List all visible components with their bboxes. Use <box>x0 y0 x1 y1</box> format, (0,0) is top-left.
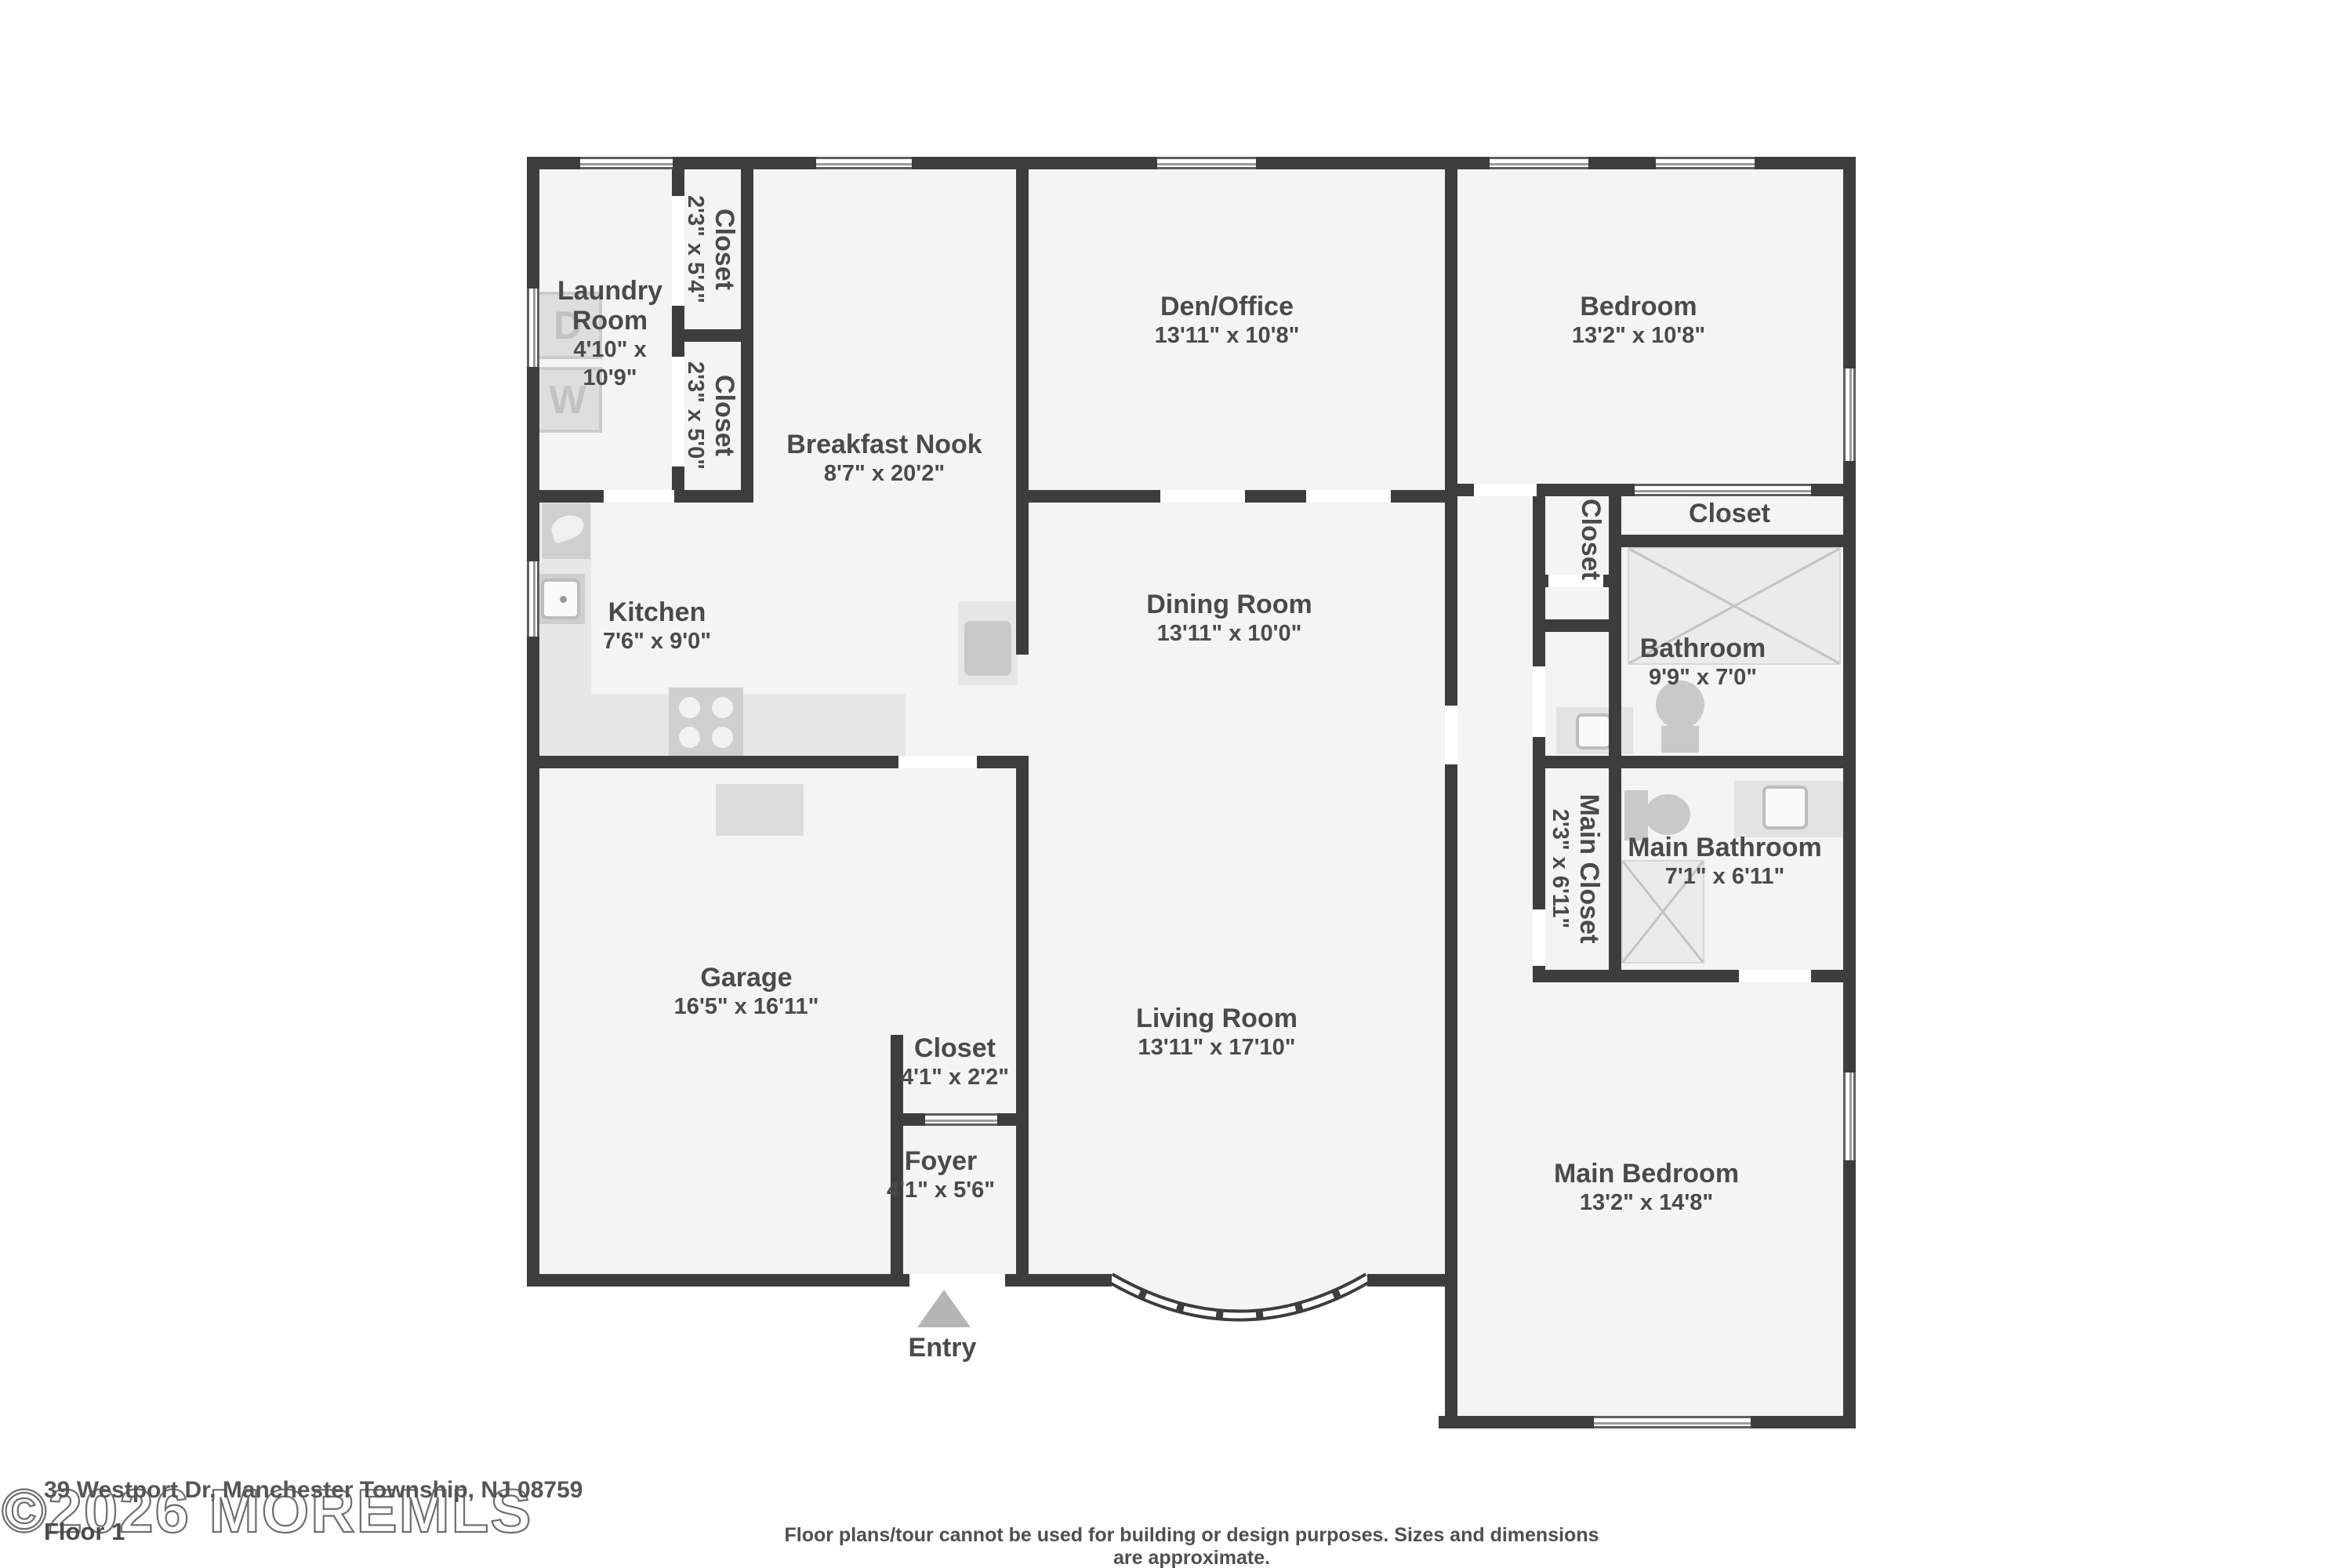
burner-icon <box>712 697 733 718</box>
burner-icon <box>712 727 733 748</box>
room-label-den-office: Den/Office 13'11" x 10'8" <box>1094 292 1360 350</box>
wall <box>1445 157 1457 1428</box>
room-label-garage: Garage 16'5" x 16'11" <box>613 963 880 1021</box>
room-label-bathroom: Bathroom 9'9" x 7'0" <box>1570 633 1836 691</box>
door-opening <box>1306 490 1391 503</box>
window <box>1157 157 1256 169</box>
disclaimer-text: Floor plans/tour cannot be used for buil… <box>784 1524 1599 1568</box>
room-label-bedroom: Bedroom 13'2" x 10'8" <box>1505 292 1772 350</box>
door-opening <box>1474 484 1537 496</box>
door-opening <box>1739 970 1811 982</box>
door-opening <box>1445 706 1457 764</box>
floorplan-canvas: D W Laundry Room 4'10" x 10'9" C <box>0 0 2352 1568</box>
room-label-living-room: Living Room 13'11" x 17'10" <box>1083 1004 1350 1062</box>
room-label-closet-hall: Closet <box>1546 406 1606 673</box>
closet-slider-door <box>1635 484 1811 496</box>
window <box>1594 1416 1751 1428</box>
wall <box>1843 157 1856 1428</box>
entry-door-opening <box>909 1274 1005 1287</box>
entry-arrow-icon <box>917 1290 971 1327</box>
door-opening <box>1160 490 1245 503</box>
toilet-tank <box>1661 726 1699 753</box>
window <box>527 289 539 367</box>
window <box>1490 157 1588 169</box>
entry-label: Entry <box>876 1333 1009 1363</box>
wall <box>1016 1274 1112 1287</box>
kitchen-counter-bottom <box>590 694 906 757</box>
floor-area-main-bedroom <box>1445 1280 1849 1422</box>
window <box>580 157 673 169</box>
burner-icon <box>679 697 700 718</box>
kitchen-appliance-inset <box>964 621 1011 676</box>
wall <box>1609 535 1856 547</box>
wall <box>1016 490 1029 655</box>
door-opening <box>898 756 977 768</box>
room-label-breakfast-nook: Breakfast Nook 8'7" x 20'2" <box>751 430 1018 488</box>
stove-icon <box>669 688 743 757</box>
window <box>1843 368 1856 461</box>
window <box>1843 1073 1856 1160</box>
room-label-closet-2: Closet 2'3" x 5'0" <box>680 282 739 549</box>
room-label-kitchen: Kitchen 7'6" x 9'0" <box>524 597 790 655</box>
burner-icon <box>679 727 700 748</box>
door-opening <box>1533 666 1545 737</box>
main-bathroom-sink-icon <box>1762 786 1808 829</box>
room-label-foyer: Foyer 4'1" x 5'6" <box>874 1146 1007 1204</box>
wall <box>1016 157 1029 503</box>
door-opening <box>604 490 674 503</box>
main-toilet-icon <box>1645 794 1690 835</box>
window <box>816 157 912 169</box>
window <box>1656 157 1755 169</box>
room-label-dining-room: Dining Room 13'11" x 10'0" <box>1096 590 1363 648</box>
closet-slider-door <box>925 1113 997 1126</box>
wall <box>1016 768 1029 1039</box>
room-label-main-bedroom: Main Bedroom 13'2" x 14'8" <box>1513 1159 1780 1217</box>
floor-number-label: Floor 1 <box>44 1518 125 1546</box>
wall <box>1609 496 1621 982</box>
door-opening <box>1533 909 1545 966</box>
room-label-laundry: Laundry Room 4'10" x 10'9" <box>543 276 677 393</box>
room-label-closet-bedroom: Closet <box>1596 499 1863 528</box>
address-text: 39 Westport Dr, Manchester Township, NJ … <box>44 1477 583 1504</box>
garage-utility-box <box>716 784 804 836</box>
room-label-closet-foyer: Closet 4'1" x 2'2" <box>888 1033 1022 1091</box>
wall <box>1367 1274 1451 1287</box>
room-label-main-bathroom: Main Bathroom 7'1" x 6'11" <box>1592 833 1858 891</box>
